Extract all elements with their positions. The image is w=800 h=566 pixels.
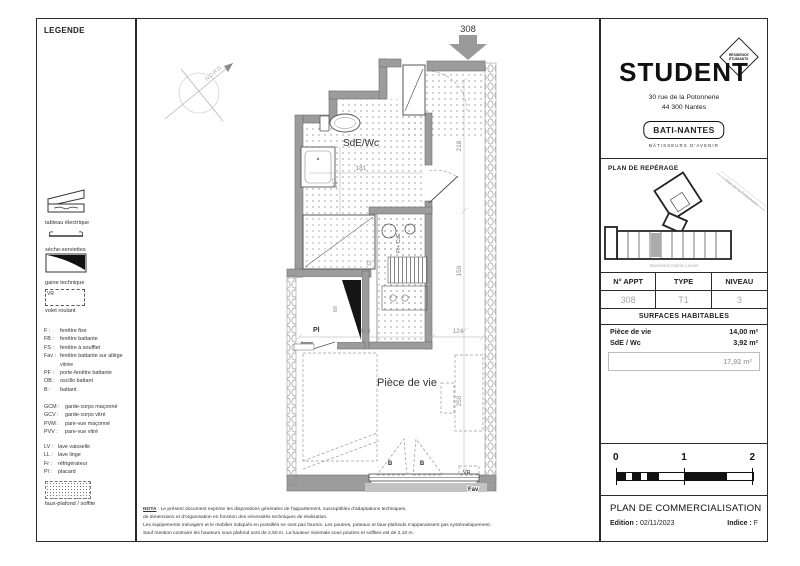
legend-item-electrical-panel: tableau électrique (45, 187, 89, 226)
floor-plan-drawing: NORD 308 (137, 19, 599, 541)
kitchen-label: Fr+ CuE (396, 233, 402, 253)
highlighted-unit (651, 233, 661, 257)
closet-label: Pl (313, 327, 320, 334)
window-b-right: B (420, 461, 425, 467)
apartment-info-table: N° APPT TYPE NIVEAU 308 T1 3 (601, 273, 767, 309)
footer-meta: Edition : 02/11/2023 Indice : F (610, 520, 758, 527)
furniture-dashed (303, 353, 483, 475)
technical-duct-icon (45, 253, 87, 273)
unit-number-label: 308 (460, 24, 476, 35)
info-header-type: TYPE (656, 273, 711, 291)
scale-bar (616, 472, 754, 481)
compass-north-icon: NORD (165, 63, 233, 121)
legend-item-towel-dryer: sèche-serviettes (45, 227, 87, 253)
edition-field: Edition : 02/11/2023 (610, 520, 674, 527)
shutter-label: VR (463, 470, 471, 476)
info-value-type: T1 (656, 291, 711, 309)
info-header-niveau: NIVEAU (712, 273, 767, 291)
floor-plan-panel: NORD 308 (136, 18, 600, 542)
info-value-niveau: 3 (712, 291, 767, 309)
nota-line-4: Sauf mention contraire les hauteurs sous… (143, 530, 595, 538)
dim-68: 68 (333, 306, 339, 312)
legend-item-technical-duct: gaine technique (45, 253, 87, 286)
nota-line-2: de dimensions et d'organisation en fonct… (143, 514, 595, 522)
brand-section: RÉSIDENCE ÉTUDIANTS STUDENT 30 rue de la… (601, 19, 767, 159)
bathroom-door (429, 170, 458, 203)
scale-tick-2: 2 (749, 452, 755, 463)
legend-title: LEGENDE (44, 26, 85, 35)
brand-address: 30 rue de la Potonnerie 44 300 Nantes (601, 93, 767, 113)
key-plan-drawing: Rue de la Potonnerie Boulevard Gabrie (601, 171, 767, 269)
room-label-sde: SdE/Wc (343, 138, 379, 149)
dim-250: 250 (456, 395, 463, 406)
surface-row-living: Pièce de vie 14,00 m² (601, 325, 767, 336)
dim-267: 267 (333, 177, 339, 188)
right-insulated-wall (485, 63, 496, 483)
surface-row-sde: SdE / Wc 3,92 m² (601, 336, 767, 347)
scale-bar-section: 0 1 2 (601, 444, 767, 496)
footer-section: PLAN DE COMMERCIALISATION Edition : 02/1… (601, 496, 767, 543)
toilet (320, 114, 360, 132)
surface-total: 17,92 m² (608, 352, 760, 371)
roller-shutter-icon: VR (45, 289, 85, 306)
washbasin (301, 147, 335, 187)
nota-line-1: NOTA : Le présent document exprime les d… (143, 506, 595, 514)
surfaces-header: SURFACES HABITABLES (601, 309, 767, 325)
title-block-panel: RÉSIDENCE ÉTUDIANTS STUDENT 30 rue de la… (600, 18, 768, 542)
legend-abbreviations-appliances: LV :lave vaisselle LL :lave linge Fr :ré… (44, 443, 132, 477)
dim-218: 218 (456, 140, 463, 151)
electrical-panel-icon (45, 187, 87, 213)
scale-tick-1: 1 (681, 452, 687, 463)
legend-abbreviations-guardrails: GCM :garde-corps maçonné GCV :garde-corp… (44, 403, 132, 437)
nota-line-3: Les équipements ménagers et le mobilier … (143, 522, 595, 530)
indice-field: Indice : F (727, 520, 758, 527)
builder-tagline: BÂTISSEURS D'AVENIR (601, 143, 767, 148)
dim-181: 181 (356, 165, 367, 172)
room-label-living: Pièce de vie (377, 377, 437, 389)
shower-tray (303, 215, 375, 269)
false-ceiling-icon (45, 481, 91, 499)
legend-panel: LEGENDE tableau électrique sèche-serviet… (36, 18, 136, 542)
legend-item-roller-shutter: VR volet roulant (45, 289, 85, 314)
nota-block: NOTA : Le présent document exprime les d… (143, 506, 595, 537)
legend-item-false-ceiling: faux-plafond / soffite (45, 481, 95, 507)
street-top-label: Rue de la Potonnerie (724, 178, 759, 207)
surfaces-section: Pièce de vie 14,00 m² SdE / Wc 3,92 m² 1… (601, 325, 767, 444)
dim-159: 159 (456, 265, 463, 276)
builder-logo: BATI-NANTES (643, 121, 724, 139)
brand-logo: STUDENT (601, 57, 767, 88)
street-bottom-label: Boulevard Gabriel Lauriol (650, 263, 700, 268)
scale-numbers: 0 1 2 (613, 452, 755, 464)
window-type-label: Fav (468, 487, 479, 493)
unit-arrow-icon (449, 35, 487, 60)
plan-sheet: LEGENDE tableau électrique sèche-serviet… (0, 0, 800, 566)
info-value-appt: 308 (601, 291, 656, 309)
location-map-section: PLAN DE REPÉRAGE Rue de la Potonnerie (601, 159, 767, 273)
legend-abbreviations-windows: F :fenêtre fixe FB :fenêtre battante FS … (44, 327, 132, 394)
left-insulated-wall (287, 275, 296, 485)
dim-188: 188 (360, 328, 371, 335)
dim-124: 124 (453, 328, 464, 335)
towel-dryer-icon (45, 230, 87, 240)
scale-tick-0: 0 (613, 452, 619, 463)
closet: Pl 68 (294, 277, 362, 350)
info-header-appt: N° APPT (601, 273, 656, 291)
window-b-left: B (388, 461, 393, 467)
document-title: PLAN DE COMMERCIALISATION (610, 503, 761, 514)
